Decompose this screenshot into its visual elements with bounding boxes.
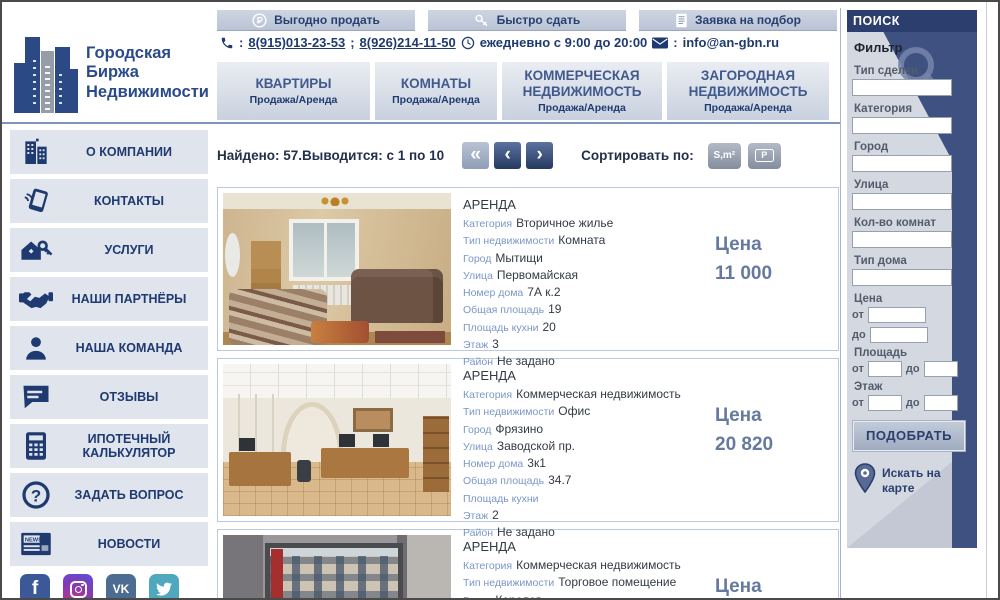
results-bar: Найдено: 57.Выводится: с 1 по 10 « ‹ › С…: [217, 142, 839, 169]
instagram-icon[interactable]: [63, 574, 93, 600]
tab-country[interactable]: ЗАГОРОДНАЯ НЕДВИЖИМОСТЬ Продажа/Аренда: [667, 62, 829, 120]
filter-body: Фильтр Тип сделки Категория Город Улица …: [847, 32, 977, 548]
sidebar-item-contacts[interactable]: КОНТАКТЫ: [10, 179, 208, 223]
listing-card-2[interactable]: АРЕНДА КатегорияКоммерческая недвижимост…: [217, 358, 839, 522]
phone-separator: ;: [350, 35, 354, 50]
filter-title: Фильтр: [854, 40, 948, 55]
quick-links-bar: Выгодно продать Быстро сдать Заявка на п…: [217, 10, 837, 31]
svg-text:NEWS: NEWS: [25, 538, 42, 544]
buildings-logo-icon: [14, 31, 78, 115]
email-icon: [652, 37, 668, 49]
handshake-icon: [16, 286, 56, 312]
area-range-group: Площадь от до: [852, 347, 948, 377]
sidebar-item-services[interactable]: УСЛУГИ: [10, 228, 208, 272]
page: Городская Биржа Недвижимости Выгодно про…: [0, 0, 1000, 600]
request-selection-button[interactable]: Заявка на подбор: [639, 10, 837, 31]
calculator-icon: [16, 431, 56, 461]
left-sidebar: О КОМПАНИИ КОНТАКТЫ УСЛУГИ НАШИ ПАРТНЁРЫ: [10, 130, 208, 600]
sidebar-item-partners-label: НАШИ ПАРТНЁРЫ: [56, 292, 202, 306]
ruble-circle-icon: [252, 13, 267, 28]
sidebar-item-services-label: УСЛУГИ: [56, 243, 202, 257]
brand-line1: Городская: [86, 44, 209, 63]
pagination-prev-button[interactable]: ‹: [494, 142, 521, 169]
house-type-input[interactable]: [852, 269, 952, 286]
floor-to-label: до: [906, 397, 920, 409]
twitter-icon[interactable]: [149, 574, 179, 600]
email-prefix: :: [673, 35, 677, 50]
main-panel-divider: [840, 8, 841, 600]
pagination-next-button[interactable]: ›: [526, 142, 553, 169]
brand-line2: Биржа: [86, 63, 209, 82]
twitter-bird-glyph: [155, 581, 173, 597]
street-input[interactable]: [852, 193, 952, 210]
field-city-label: Город: [854, 141, 948, 153]
tab-country-label: ЗАГОРОДНАЯ НЕДВИЖИМОСТЬ: [671, 68, 825, 98]
floor-to-input[interactable]: [924, 395, 958, 411]
price-to-label: до: [852, 329, 866, 341]
range-area-label: Площадь: [854, 347, 948, 359]
brand-line3: Недвижимости: [86, 83, 209, 102]
deal-type: АРЕНДА: [463, 368, 715, 383]
search-on-map-label: Искать на карте: [882, 466, 946, 495]
sort-by-label: Сортировать по:: [581, 148, 694, 163]
sidebar-item-partners[interactable]: НАШИ ПАРТНЁРЫ: [10, 277, 208, 321]
phone-tablet-icon: [16, 186, 56, 216]
rooms-count-input[interactable]: [852, 231, 952, 248]
chat-icon: [16, 383, 56, 411]
floor-from-label: от: [852, 397, 864, 409]
phone-link-2[interactable]: 8(926)214-11-50: [360, 35, 456, 50]
house-keys-icon: [16, 235, 56, 265]
sort-buttons: S,m² Р: [708, 143, 781, 169]
vk-glyph: VK: [113, 582, 130, 596]
person-icon: [16, 333, 56, 363]
field-street-label: Улица: [854, 179, 948, 191]
sidebar-item-about[interactable]: О КОМПАНИИ: [10, 130, 208, 174]
brand-name: Городская Биржа Недвижимости: [86, 44, 209, 102]
area-from-input[interactable]: [868, 361, 902, 377]
search-filter-panel: ПОИСК Фильтр Тип сделки Категория Город …: [847, 10, 977, 548]
city-input[interactable]: [852, 155, 952, 172]
deal-type: АРЕНДА: [463, 539, 715, 554]
price-label: Цена: [715, 402, 833, 431]
keys-icon: [474, 13, 490, 28]
clock-icon: [461, 36, 475, 50]
sort-by-price-button[interactable]: Р: [748, 143, 781, 169]
sort-by-area-button[interactable]: S,m²: [708, 143, 741, 169]
sell-profitably-label: Выгодно продать: [274, 13, 380, 27]
search-panel-title: ПОИСК: [847, 10, 977, 32]
facebook-glyph: f: [32, 578, 38, 600]
header-divider: [2, 122, 840, 124]
tab-rooms-sub: Продажа/Аренда: [392, 94, 480, 106]
vk-icon[interactable]: VK: [106, 574, 136, 600]
sidebar-item-reviews-label: ОТЗЫВЫ: [56, 390, 202, 404]
listing-photo-shop: [223, 535, 451, 600]
tab-apartments-sub: Продажа/Аренда: [250, 94, 338, 106]
tab-rooms-label: КОМНАТЫ: [401, 76, 471, 91]
price-to-input[interactable]: [870, 327, 928, 343]
document-icon: [675, 13, 688, 28]
search-on-map-link[interactable]: Искать на карте: [854, 463, 948, 498]
field-category-label: Категория: [854, 103, 948, 115]
price-block: Цена 20 820: [715, 364, 833, 516]
sidebar-item-mortgage-calculator-label: ИПОТЕЧНЫЙ КАЛЬКУЛЯТОР: [56, 432, 202, 461]
price-value: 11 000: [715, 260, 833, 289]
area-to-input[interactable]: [924, 361, 958, 377]
sidebar-item-news[interactable]: NEWS НОВОСТИ: [10, 522, 208, 566]
floor-from-input[interactable]: [868, 395, 902, 411]
question-icon: ?: [16, 480, 56, 510]
sidebar-item-reviews[interactable]: ОТЗЫВЫ: [10, 375, 208, 419]
sidebar-item-team-label: НАША КОМАНДА: [56, 341, 202, 355]
deal-type: АРЕНДА: [463, 197, 715, 212]
brand-logo[interactable]: Городская Биржа Недвижимости: [14, 24, 214, 122]
email-link[interactable]: info@an-gbn.ru: [683, 35, 779, 50]
sidebar-item-ask-question-label: ЗАДАТЬ ВОПРОС: [56, 488, 202, 502]
pagination-first-button[interactable]: «: [462, 142, 489, 169]
tab-rooms[interactable]: КОМНАТЫ Продажа/Аренда: [375, 62, 497, 120]
sidebar-item-ask-question[interactable]: ? ЗАДАТЬ ВОПРОС: [10, 473, 208, 517]
sidebar-item-mortgage-calculator[interactable]: ИПОТЕЧНЫЙ КАЛЬКУЛЯТОР: [10, 424, 208, 468]
field-house-type-label: Тип дома: [854, 255, 948, 267]
range-floor-label: Этаж: [854, 381, 948, 393]
floor-range-group: Этаж от до: [852, 381, 948, 411]
tab-commercial-sub: Продажа/Аренда: [538, 102, 626, 114]
price-from-input[interactable]: [868, 307, 926, 323]
sidebar-item-team[interactable]: НАША КОМАНДА: [10, 326, 208, 370]
price-sort-icon: Р: [755, 149, 774, 162]
price-label: Цена: [715, 231, 833, 260]
social-links: f VK: [20, 574, 208, 600]
pagination: « ‹ ›: [462, 142, 553, 169]
price-block: Цена 11 000: [715, 193, 833, 345]
price-value: 20 820: [715, 431, 833, 460]
page-right-edge: [986, 2, 987, 600]
svg-text:?: ?: [31, 486, 41, 505]
working-hours: ежедневно с 9:00 до 20:00: [480, 35, 648, 50]
main-nav-tabs: КВАРТИРЫ Продажа/Аренда КОМНАТЫ Продажа/…: [217, 62, 839, 120]
instagram-camera-glyph: [70, 581, 87, 598]
results-summary: Найдено: 57.Выводится: с 1 по 10: [217, 148, 444, 163]
tab-commercial[interactable]: КОММЕРЧЕСКАЯ НЕДВИЖИМОСТЬ Продажа/Аренда: [502, 62, 662, 120]
search-submit-button[interactable]: ПОДОБРАТЬ: [853, 421, 965, 451]
tab-commercial-label: КОММЕРЧЕСКАЯ НЕДВИЖИМОСТЬ: [506, 68, 658, 98]
facebook-icon[interactable]: f: [20, 574, 50, 600]
price-label: Цена: [715, 573, 833, 600]
listing-card-3[interactable]: АРЕНДА КатегорияКоммерческая недвижимост…: [217, 529, 839, 600]
tab-apartments[interactable]: КВАРТИРЫ Продажа/Аренда: [217, 62, 370, 120]
field-rooms-label: Кол-во комнат: [854, 217, 948, 229]
sell-profitably-button[interactable]: Выгодно продать: [217, 10, 415, 31]
phone-link-1[interactable]: 8(915)013-23-53: [248, 35, 345, 50]
price-range-group: Цена от до: [852, 293, 948, 343]
rent-out-quickly-button[interactable]: Быстро сдать: [428, 10, 626, 31]
deal-type-input[interactable]: [852, 79, 952, 96]
request-selection-label: Заявка на подбор: [695, 13, 801, 27]
listing-photo-room: [223, 193, 451, 345]
field-deal-type-label: Тип сделки: [854, 65, 948, 77]
price-from-label: от: [852, 309, 864, 321]
sidebar-item-about-label: О КОМПАНИИ: [56, 145, 202, 159]
tab-country-sub: Продажа/Аренда: [704, 102, 792, 114]
area-from-label: от: [852, 363, 864, 375]
listing-photo-office: [223, 364, 451, 516]
building-icon: [16, 136, 56, 168]
contact-bar: : 8(915)013-23-53 ; 8(926)214-11-50 ежед…: [220, 35, 840, 50]
phone-prefix: :: [239, 35, 243, 50]
listing-details: АРЕНДА КатегорияКоммерческая недвижимост…: [463, 364, 715, 516]
listing-details: АРЕНДА КатегорияКоммерческая недвижимост…: [463, 535, 715, 600]
price-block: Цена: [715, 535, 833, 600]
results-area: Найдено: 57.Выводится: с 1 по 10 « ‹ › С…: [217, 130, 839, 600]
sidebar-item-news-label: НОВОСТИ: [56, 537, 202, 551]
listing-card-1[interactable]: АРЕНДА КатегорияВторичное жилье Тип недв…: [217, 187, 839, 351]
area-to-label: до: [906, 363, 920, 375]
range-price-label: Цена: [854, 293, 948, 305]
category-input[interactable]: [852, 117, 952, 134]
news-icon: NEWS: [16, 530, 56, 558]
phone-icon: [220, 36, 234, 50]
listing-details: АРЕНДА КатегорияВторичное жилье Тип недв…: [463, 193, 715, 345]
sidebar-item-contacts-label: КОНТАКТЫ: [56, 194, 202, 208]
tab-apartments-label: КВАРТИРЫ: [255, 76, 331, 91]
map-pin-icon: [854, 463, 876, 498]
area-sort-icon: S,m²: [713, 150, 735, 161]
rent-out-quickly-label: Быстро сдать: [497, 13, 581, 27]
